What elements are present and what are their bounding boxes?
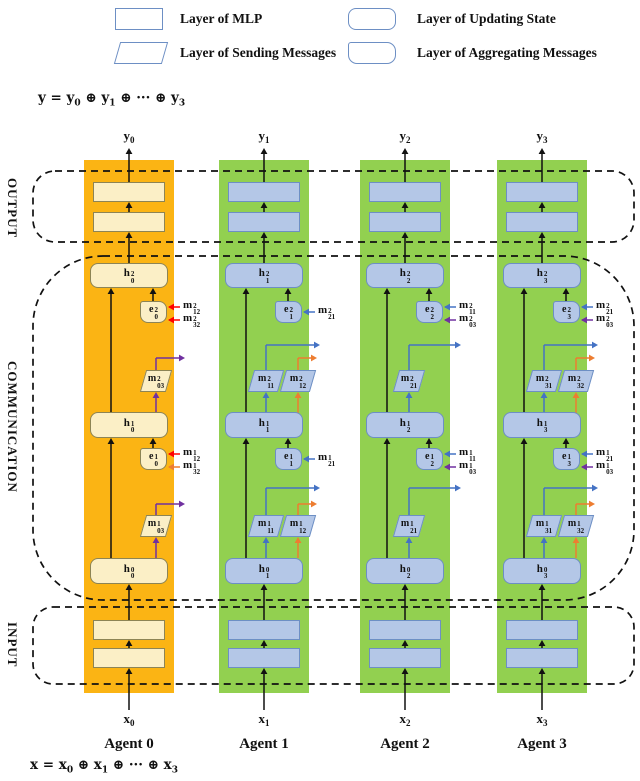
h2-box: h20 xyxy=(90,263,168,288)
math-scripts: 01 xyxy=(266,567,270,580)
math: x1 xyxy=(239,711,289,728)
math-base: e xyxy=(284,451,288,462)
arrow-head xyxy=(444,304,450,311)
math-base: m xyxy=(459,459,468,471)
arrow-head xyxy=(573,537,580,543)
math-base: m xyxy=(568,518,576,529)
math-base: e xyxy=(425,304,429,315)
math-scripts: 10 xyxy=(131,421,135,434)
arrow-head xyxy=(521,438,528,444)
message-label: m203 xyxy=(596,312,613,329)
arrow-head xyxy=(539,584,546,590)
math-base: m xyxy=(183,299,192,311)
e1-label: e12 xyxy=(425,451,434,467)
y-output-label: y1 xyxy=(239,128,289,145)
arrow-head xyxy=(303,309,309,316)
math-scripts: 21 xyxy=(289,307,293,320)
h0-label: h00 xyxy=(124,563,135,580)
send-message-label: m132 xyxy=(561,515,591,537)
arrow-head xyxy=(168,451,174,458)
math-scripts: 211 xyxy=(267,376,274,389)
e1-label: e10 xyxy=(149,451,158,467)
in-message-label: m232 xyxy=(183,313,200,327)
arrow-head xyxy=(153,392,160,398)
arrow-head xyxy=(573,392,580,398)
math-scripts: 112 xyxy=(299,521,306,534)
message-label: m121 xyxy=(318,451,335,468)
arrow-head xyxy=(384,438,391,444)
arrow-head xyxy=(444,464,450,471)
arrow-head xyxy=(455,485,461,492)
arrow-head xyxy=(402,202,409,208)
math-base: e xyxy=(149,451,153,462)
e2-label: e22 xyxy=(425,304,434,320)
math-scripts: 103 xyxy=(606,463,613,476)
math-base: m xyxy=(148,518,156,529)
arrow-head xyxy=(263,537,270,543)
math-scripts: 11 xyxy=(289,454,293,467)
arrow-head xyxy=(179,501,185,508)
math-scripts: 132 xyxy=(193,463,200,476)
send-message-label: m232 xyxy=(561,370,591,392)
math-base: m xyxy=(290,373,298,384)
math-base: e xyxy=(562,304,566,315)
h0-label: h01 xyxy=(259,563,270,580)
arrow-head xyxy=(243,288,250,294)
math-base: m xyxy=(459,299,468,311)
math-base: m xyxy=(459,446,468,458)
x-input-label: x3 xyxy=(517,711,567,728)
arrow-head xyxy=(126,232,133,238)
h0-box: h02 xyxy=(366,558,444,584)
arrow-head xyxy=(444,451,450,458)
arrow-head xyxy=(581,451,587,458)
math-scripts: 121 xyxy=(328,455,335,468)
h0-box: h03 xyxy=(503,558,581,584)
math-base: h xyxy=(537,267,543,279)
arrow-head xyxy=(314,485,320,492)
arrow-head xyxy=(285,288,292,294)
arrow-head xyxy=(539,148,546,154)
math-scripts: 12 xyxy=(407,421,411,434)
math-base: m xyxy=(596,446,605,458)
arrow-head xyxy=(261,232,268,238)
math-scripts: 03 xyxy=(544,567,548,580)
math-base: m xyxy=(596,459,605,471)
message-label: m203 xyxy=(459,312,476,329)
output-mlp-box xyxy=(369,212,441,232)
send-message-label: m231 xyxy=(529,370,559,392)
send-message-label: m212 xyxy=(283,370,313,392)
output-mlp-box xyxy=(93,182,165,202)
math-sub: 0 xyxy=(130,718,135,728)
math: x3 xyxy=(517,711,567,728)
arrow-head xyxy=(592,342,598,349)
message-label: m112 xyxy=(290,518,306,534)
math-base: h xyxy=(259,563,265,575)
h2-box: h23 xyxy=(503,263,581,288)
math-sub: 3 xyxy=(543,135,548,145)
arrow-head xyxy=(168,304,174,311)
math-sub: 3 xyxy=(543,718,548,728)
in-message-label: m203 xyxy=(459,313,476,327)
input-mlp-box xyxy=(369,620,441,640)
math: y3 xyxy=(517,128,567,145)
arrow-head xyxy=(108,288,115,294)
math-base: m xyxy=(318,304,327,316)
math-scripts: 22 xyxy=(430,307,434,320)
e2-box: e20 xyxy=(140,301,167,323)
send-message-label: m221 xyxy=(396,370,422,392)
send-message-label: m111 xyxy=(251,515,281,537)
y-output-label: y0 xyxy=(104,128,154,145)
h2-box: h22 xyxy=(366,263,444,288)
math-base: h xyxy=(259,267,265,279)
x-input-label: x1 xyxy=(239,711,289,728)
arrow-head xyxy=(153,537,160,543)
arrow-head xyxy=(126,202,133,208)
math-scripts: 10 xyxy=(154,454,158,467)
math-scripts: 111 xyxy=(267,521,274,534)
arrow-head xyxy=(261,584,268,590)
math-scripts: 20 xyxy=(131,271,135,284)
arrow-head xyxy=(126,640,133,646)
message-label: m221 xyxy=(401,373,417,389)
math-sub: 1 xyxy=(265,135,270,145)
math-scripts: 11 xyxy=(266,421,270,434)
h2-label: h21 xyxy=(259,267,270,284)
arrow-head xyxy=(261,668,268,674)
h1-label: h11 xyxy=(259,417,270,434)
arrow-head xyxy=(541,537,548,543)
math-base: h xyxy=(124,563,130,575)
e1-box: e10 xyxy=(140,448,167,470)
math-scripts: 121 xyxy=(410,521,417,534)
h1-label: h13 xyxy=(537,417,548,434)
message-label: m103 xyxy=(459,459,476,476)
arrow-head xyxy=(261,202,268,208)
arrow-head xyxy=(168,464,174,471)
arrow-head xyxy=(261,640,268,646)
message-label: m111 xyxy=(258,518,274,534)
y-output-label: y2 xyxy=(380,128,430,145)
arrow-head xyxy=(402,584,409,590)
math-scripts: 103 xyxy=(157,521,164,534)
arrow-head xyxy=(311,501,317,508)
math: x2 xyxy=(380,711,430,728)
h2-label: h23 xyxy=(537,267,548,284)
e2-box: e22 xyxy=(416,301,443,323)
arrow-head xyxy=(126,148,133,154)
math-base: m xyxy=(258,518,266,529)
arrow-head xyxy=(150,288,157,294)
math-base: e xyxy=(284,304,288,315)
arrow-head xyxy=(426,438,433,444)
x-input-label: x2 xyxy=(380,711,430,728)
math-base: h xyxy=(537,417,543,429)
arrow-head xyxy=(581,304,587,311)
send-message-label: m131 xyxy=(529,515,559,537)
math-base: h xyxy=(259,417,265,429)
math-base: m xyxy=(318,451,327,463)
message-label: m131 xyxy=(536,518,552,534)
arrow-head xyxy=(539,668,546,674)
arrow-head xyxy=(402,668,409,674)
arrow-head xyxy=(521,288,528,294)
arrow-head xyxy=(311,355,317,362)
e1-label: e13 xyxy=(562,451,571,467)
message-label: m232 xyxy=(183,312,200,329)
arrow-head xyxy=(179,355,185,362)
math-base: m xyxy=(596,299,605,311)
send-message-label: m112 xyxy=(283,515,313,537)
math-sub: 2 xyxy=(406,135,411,145)
arrow-head xyxy=(243,438,250,444)
in-message-label: m203 xyxy=(596,313,613,327)
math-base: e xyxy=(562,451,566,462)
y-output-label: y3 xyxy=(517,128,567,145)
arrow-head xyxy=(581,464,587,471)
math-base: h xyxy=(400,267,406,279)
h0-box: h01 xyxy=(225,558,303,584)
message-label: m132 xyxy=(183,459,200,476)
input-mlp-box xyxy=(93,648,165,668)
math-scripts: 02 xyxy=(407,567,411,580)
math-base: m xyxy=(536,373,544,384)
arrow-head xyxy=(303,456,309,463)
input-mlp-box xyxy=(506,620,578,640)
message-label: m212 xyxy=(290,373,306,389)
math-scripts: 212 xyxy=(299,376,306,389)
e2-label: e20 xyxy=(149,304,158,320)
in-message-label: m103 xyxy=(596,460,613,474)
e1-box: e11 xyxy=(275,448,302,470)
math-scripts: 13 xyxy=(567,454,571,467)
arrow-head xyxy=(455,342,461,349)
h1-box: h11 xyxy=(225,412,303,438)
arrow-head xyxy=(402,640,409,646)
math-base: m xyxy=(568,373,576,384)
math: y1 xyxy=(239,128,289,145)
math-base: m xyxy=(183,459,192,471)
math-base: m xyxy=(183,312,192,324)
agent-name: Agent 2 xyxy=(360,736,450,753)
e2-label: e23 xyxy=(562,304,571,320)
arrow-head xyxy=(261,148,268,154)
output-mlp-box xyxy=(506,182,578,202)
math-base: m xyxy=(596,312,605,324)
math-base: m xyxy=(401,373,409,384)
e1-box: e13 xyxy=(553,448,580,470)
arrow-head xyxy=(563,438,570,444)
arrow-head xyxy=(314,342,320,349)
arrow-head xyxy=(406,392,413,398)
h2-box: h21 xyxy=(225,263,303,288)
output-mlp-box xyxy=(506,212,578,232)
message-label: m121 xyxy=(401,518,417,534)
math-scripts: 00 xyxy=(131,567,135,580)
send-message-label: m211 xyxy=(251,370,281,392)
math-scripts: 23 xyxy=(544,271,548,284)
arrow-head xyxy=(539,640,546,646)
math-sub: 2 xyxy=(406,718,411,728)
math-scripts: 13 xyxy=(544,421,548,434)
math-scripts: 132 xyxy=(577,521,584,534)
math-scripts: 232 xyxy=(193,316,200,329)
arrow-head xyxy=(563,288,570,294)
message-label: m203 xyxy=(148,373,164,389)
arrow-head xyxy=(592,485,598,492)
message-label: m132 xyxy=(568,518,584,534)
math-base: h xyxy=(400,563,406,575)
arrow-head xyxy=(263,392,270,398)
send-message-label: m103 xyxy=(143,515,169,537)
arrow-head xyxy=(168,317,174,324)
message-label: m103 xyxy=(596,459,613,476)
math-scripts: 203 xyxy=(157,376,164,389)
math-sub: 1 xyxy=(265,718,270,728)
math-base: h xyxy=(124,417,130,429)
math-scripts: 221 xyxy=(410,376,417,389)
arrow-head xyxy=(402,148,409,154)
message-label: m221 xyxy=(318,304,335,321)
math-scripts: 20 xyxy=(154,307,158,320)
arrow-head xyxy=(384,288,391,294)
math: y2 xyxy=(380,128,430,145)
arrow-head xyxy=(126,668,133,674)
send-message-label: m203 xyxy=(143,370,169,392)
message-label: m232 xyxy=(568,373,584,389)
e2-box: e21 xyxy=(275,301,302,323)
math-base: h xyxy=(124,267,130,279)
message-label: m211 xyxy=(258,373,274,389)
e1-label: e11 xyxy=(284,451,293,467)
arrow-head xyxy=(589,355,595,362)
in-message-label: m221 xyxy=(318,305,335,319)
e2-label: e21 xyxy=(284,304,293,320)
h1-label: h10 xyxy=(124,417,135,434)
math-scripts: 23 xyxy=(567,307,571,320)
h2-label: h20 xyxy=(124,267,135,284)
arrow-head xyxy=(295,392,302,398)
math-base: m xyxy=(401,518,409,529)
math-scripts: 232 xyxy=(577,376,584,389)
h1-label: h12 xyxy=(400,417,411,434)
math-scripts: 12 xyxy=(430,454,434,467)
arrow-head xyxy=(581,317,587,324)
math-base: h xyxy=(400,417,406,429)
input-mlp-box xyxy=(228,620,300,640)
math-base: m xyxy=(183,446,192,458)
math-base: m xyxy=(459,312,468,324)
math-sub: 0 xyxy=(130,135,135,145)
math-scripts: 21 xyxy=(266,271,270,284)
math-scripts: 221 xyxy=(328,308,335,321)
h0-label: h03 xyxy=(537,563,548,580)
arrow-head xyxy=(589,501,595,508)
math-base: e xyxy=(425,451,429,462)
h2-label: h22 xyxy=(400,267,411,284)
in-message-label: m121 xyxy=(318,452,335,466)
math-scripts: 203 xyxy=(469,316,476,329)
math-scripts: 203 xyxy=(606,316,613,329)
arrow-head xyxy=(539,232,546,238)
x-input-label: x0 xyxy=(104,711,154,728)
math: y0 xyxy=(104,128,154,145)
arrow-head xyxy=(295,537,302,543)
arrow-head xyxy=(126,584,133,590)
math-base: e xyxy=(149,304,153,315)
math-scripts: 231 xyxy=(545,376,552,389)
h0-label: h02 xyxy=(400,563,411,580)
in-message-label: m132 xyxy=(183,460,200,474)
output-mlp-box xyxy=(369,182,441,202)
math-scripts: 131 xyxy=(545,521,552,534)
agent-name: Agent 3 xyxy=(497,736,587,753)
h1-box: h13 xyxy=(503,412,581,438)
h1-box: h12 xyxy=(366,412,444,438)
output-mlp-box xyxy=(228,212,300,232)
input-mlp-box xyxy=(506,648,578,668)
input-mlp-box xyxy=(93,620,165,640)
agent-name: Agent 1 xyxy=(219,736,309,753)
h1-box: h10 xyxy=(90,412,168,438)
math: x0 xyxy=(104,711,154,728)
e1-box: e12 xyxy=(416,448,443,470)
math-base: m xyxy=(290,518,298,529)
arrow-head xyxy=(539,202,546,208)
input-mlp-box xyxy=(369,648,441,668)
h0-box: h00 xyxy=(90,558,168,584)
e2-box: e23 xyxy=(553,301,580,323)
output-mlp-box xyxy=(228,182,300,202)
in-message-label: m103 xyxy=(459,460,476,474)
message-label: m103 xyxy=(148,518,164,534)
agent-name: Agent 0 xyxy=(84,736,174,753)
math-base: m xyxy=(148,373,156,384)
arrow-head xyxy=(406,537,413,543)
math-scripts: 103 xyxy=(469,463,476,476)
arrow-head xyxy=(426,288,433,294)
arrow-head xyxy=(402,232,409,238)
output-mlp-box xyxy=(93,212,165,232)
math-base: m xyxy=(536,518,544,529)
arrow-head xyxy=(285,438,292,444)
arrow-head xyxy=(541,392,548,398)
math-base: h xyxy=(537,563,543,575)
arrow-head xyxy=(444,317,450,324)
arrow-head xyxy=(150,438,157,444)
send-message-label: m121 xyxy=(396,515,422,537)
math-base: m xyxy=(258,373,266,384)
input-mlp-box xyxy=(228,648,300,668)
arrow-head xyxy=(108,438,115,444)
math-scripts: 22 xyxy=(407,271,411,284)
message-label: m231 xyxy=(536,373,552,389)
figure-root: Layer of MLP Layer of Updating State Lay… xyxy=(0,0,640,781)
